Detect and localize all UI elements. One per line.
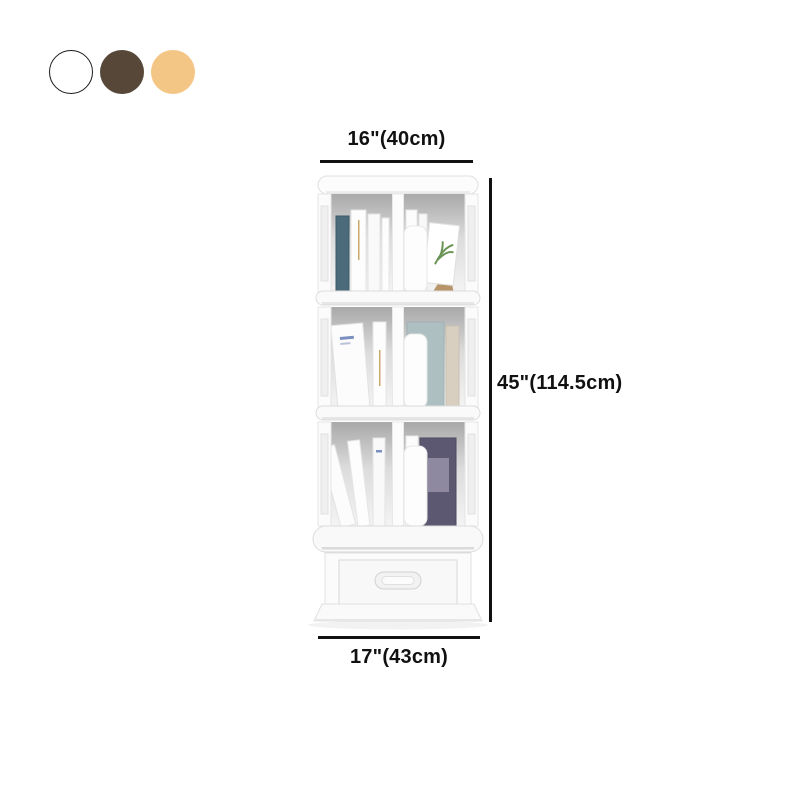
tier-1	[316, 194, 480, 305]
rotating-base	[313, 526, 483, 552]
beige-book	[446, 326, 459, 408]
tier-2-books-left	[331, 322, 386, 409]
tier-3	[318, 422, 478, 528]
top-cap	[318, 176, 478, 194]
floor-shadow	[308, 621, 488, 630]
color-swatch-group	[49, 50, 195, 94]
tier-2	[316, 307, 480, 420]
product-dimension-image: 16"(40cm) 45"(114.5cm) 17"(43cm)	[0, 0, 800, 800]
height-label: 45"(114.5cm)	[497, 372, 622, 395]
bottom-width-label: 17"(43cm)	[318, 646, 480, 669]
tier-2-books-right	[404, 322, 459, 408]
center-divider	[393, 307, 404, 408]
color-swatch-white[interactable]	[49, 50, 93, 94]
shelf-board-1	[316, 291, 480, 305]
bookend-panel	[404, 334, 427, 408]
tier-3-books-right	[404, 436, 456, 526]
top-width-label: 16"(40cm)	[320, 128, 473, 151]
shelf-board-2	[316, 406, 480, 420]
color-swatch-tan[interactable]	[151, 50, 195, 94]
product-photo	[300, 160, 500, 640]
bookend-panel	[404, 226, 427, 293]
center-divider	[393, 422, 404, 526]
color-swatch-brown[interactable]	[100, 50, 144, 94]
drawer-handle	[375, 572, 421, 589]
center-divider	[393, 194, 404, 293]
bookshelf-illustration	[300, 160, 500, 640]
plinth	[314, 604, 482, 621]
teal-book	[336, 216, 349, 293]
bookend-panel	[404, 446, 427, 526]
plant-card	[423, 223, 459, 286]
drawer-unit	[325, 552, 471, 606]
